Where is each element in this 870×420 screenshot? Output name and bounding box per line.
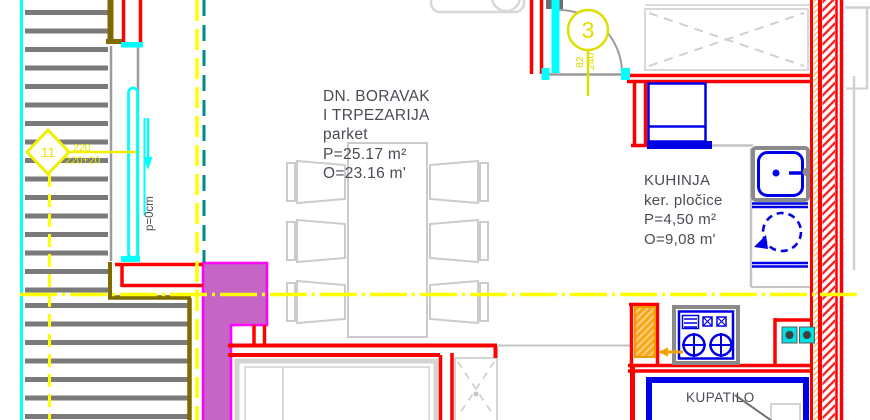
stove (674, 307, 738, 363)
kitchen-sink (753, 148, 811, 200)
living-room-label: DN. BORAVAK I TRPEZARIJA parket P=25.17 … (323, 87, 430, 183)
closet-column (455, 358, 497, 420)
plan-linework: 11 220 220+20 3 82 240 p=0cm (0, 0, 870, 420)
slope-label: p=0cm (144, 196, 156, 231)
door-circle-number: 3 (582, 17, 595, 43)
living-line-2: I TRPEZARIJA (323, 106, 430, 125)
bathroom-label: KUPATILO (686, 390, 755, 405)
living-line-5: O=23.16 m' (323, 164, 430, 183)
fridge-unit (647, 84, 712, 150)
faucet-dot (773, 170, 780, 177)
stair-diamond-number: 11 (41, 144, 56, 160)
washing-machine-symbol (754, 213, 801, 251)
socket-pair (782, 327, 815, 343)
entry-door-leaf (552, 0, 560, 73)
top-counter (431, 0, 524, 12)
living-line-3: parket (323, 125, 430, 144)
boiler (635, 307, 655, 357)
kitchen-line-3: P=4,50 m² (644, 210, 723, 230)
bathroom-fixture-partial (771, 404, 800, 420)
door-dim-height: 240 (585, 52, 597, 70)
kitchen-label: KUHINJA ker. pločice P=4,50 m² O=9,08 m' (644, 171, 723, 249)
bed (237, 361, 436, 420)
stair-marker: 11 220 220+20 (27, 130, 136, 174)
exterior-wall-hatched (812, 0, 842, 420)
living-line-1: DN. BORAVAK (323, 87, 430, 106)
kitchen-line-1: KUHINJA (644, 171, 723, 191)
stair-dim-top: 220 (73, 142, 91, 154)
door-number-marker: 3 82 240 (568, 10, 608, 96)
kitchen-line-4: O=9,08 m' (644, 230, 723, 250)
living-line-4: P=25.17 m² (323, 145, 430, 164)
terrace-door-leaf (129, 88, 138, 258)
wardrobe-top-right (645, 5, 810, 70)
stair-dim-bottom: 220+20 (65, 155, 100, 167)
exterior-gray-lines (845, 7, 870, 270)
kitchen-line-2: ker. pločice (644, 191, 723, 211)
floor-plan: 11 220 220+20 3 82 240 p=0cm DN. BORAVAK… (0, 0, 870, 420)
